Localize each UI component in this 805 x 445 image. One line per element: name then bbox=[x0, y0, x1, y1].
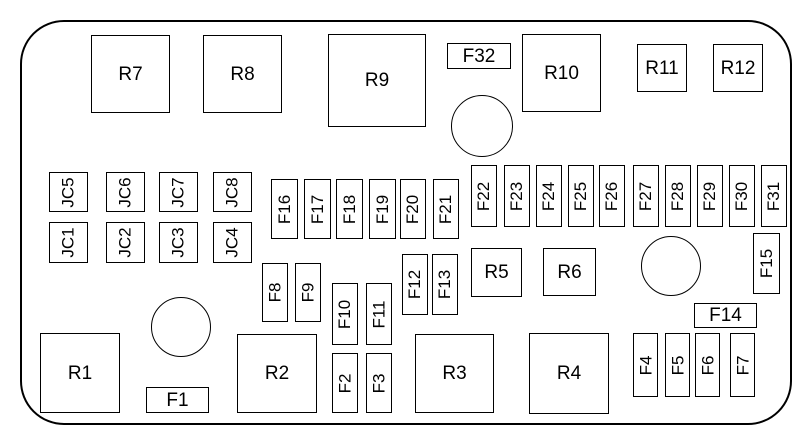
fuse-F1: F1 bbox=[146, 387, 209, 413]
fuse-F31-label: F31 bbox=[766, 181, 783, 210]
relay-R12: R12 bbox=[713, 44, 763, 92]
junction-JC5-label: JC5 bbox=[60, 177, 77, 207]
mounting-hole-right-icon bbox=[641, 236, 701, 296]
relay-R11-label: R11 bbox=[645, 59, 678, 78]
fuse-F14: F14 bbox=[694, 303, 757, 328]
fuse-F1-label: F1 bbox=[166, 391, 188, 410]
relay-R1-label: R1 bbox=[68, 364, 92, 383]
fuse-F10: F10 bbox=[332, 283, 358, 345]
fuse-F26-label: F26 bbox=[604, 181, 621, 210]
fuse-F16: F16 bbox=[271, 179, 298, 239]
junction-JC5: JC5 bbox=[49, 172, 88, 212]
junction-JC2-label: JC2 bbox=[117, 227, 134, 257]
junction-JC8-label: JC8 bbox=[224, 177, 241, 207]
relay-R2-label: R2 bbox=[265, 364, 289, 383]
fuse-F20-label: F20 bbox=[405, 194, 422, 223]
relay-R1: R1 bbox=[40, 333, 120, 413]
relay-R7-label: R7 bbox=[118, 65, 142, 84]
fuse-F28-label: F28 bbox=[670, 181, 687, 210]
relay-R6: R6 bbox=[543, 248, 596, 296]
fuse-F27: F27 bbox=[633, 165, 659, 227]
fuse-F15-label: F15 bbox=[758, 249, 775, 278]
relay-R4-label: R4 bbox=[557, 364, 581, 383]
relay-R8-label: R8 bbox=[230, 65, 254, 84]
junction-JC6: JC6 bbox=[106, 172, 145, 212]
relay-R4: R4 bbox=[529, 333, 609, 414]
junction-JC4: JC4 bbox=[213, 222, 252, 263]
relay-R5: R5 bbox=[471, 248, 522, 297]
fuse-F6-label: F6 bbox=[699, 355, 716, 375]
fuse-F22: F22 bbox=[471, 165, 497, 227]
fuse-F27-label: F27 bbox=[638, 181, 655, 210]
fuse-F21: F21 bbox=[433, 179, 459, 239]
junction-JC4-label: JC4 bbox=[224, 227, 241, 257]
fuse-F9: F9 bbox=[295, 263, 321, 322]
relay-R10: R10 bbox=[522, 34, 601, 112]
fuse-F26: F26 bbox=[599, 165, 625, 227]
fuse-F9-label: F9 bbox=[300, 283, 317, 303]
fuse-F5-label: F5 bbox=[669, 355, 686, 375]
fuse-F24-label: F24 bbox=[541, 181, 558, 210]
fuse-F3-label: F3 bbox=[371, 373, 388, 393]
fuse-F12: F12 bbox=[402, 254, 428, 315]
relay-R7: R7 bbox=[91, 35, 170, 113]
relay-R2: R2 bbox=[237, 334, 317, 413]
relay-R11: R11 bbox=[637, 44, 687, 92]
fuse-F18-label: F18 bbox=[341, 194, 358, 223]
junction-JC3-label: JC3 bbox=[170, 227, 187, 257]
fuse-F17: F17 bbox=[304, 179, 331, 239]
relay-R9: R9 bbox=[328, 34, 426, 127]
relay-R8: R8 bbox=[203, 35, 282, 113]
fuse-F25-label: F25 bbox=[573, 181, 590, 210]
fuse-F8: F8 bbox=[262, 263, 288, 322]
fuse-F29-label: F29 bbox=[702, 181, 719, 210]
fuse-F32: F32 bbox=[447, 43, 511, 69]
fuse-F7: F7 bbox=[730, 333, 755, 397]
fuse-F29: F29 bbox=[697, 165, 723, 227]
fuse-F31: F31 bbox=[761, 165, 787, 227]
relay-R3: R3 bbox=[415, 334, 494, 413]
mounting-hole-bottom-icon bbox=[151, 297, 211, 357]
fuse-F13-label: F13 bbox=[437, 270, 454, 299]
relay-R6-label: R6 bbox=[557, 263, 581, 282]
fuse-box-diagram: R7 R8 R9 F32 R10 R11 R12 JC5 JC6 JC7 JC8… bbox=[0, 0, 805, 445]
fuse-F2-label: F2 bbox=[337, 373, 354, 393]
fuse-F28: F28 bbox=[665, 165, 691, 227]
fuse-F22-label: F22 bbox=[476, 181, 493, 210]
fuse-F13: F13 bbox=[432, 254, 458, 315]
junction-JC1-label: JC1 bbox=[60, 227, 77, 257]
fuse-F4-label: F4 bbox=[637, 355, 654, 375]
fuse-F23-label: F23 bbox=[509, 181, 526, 210]
junction-JC3: JC3 bbox=[159, 222, 198, 263]
fuse-F11-label: F11 bbox=[371, 300, 388, 328]
fuse-F10-label: F10 bbox=[337, 299, 354, 328]
fuse-F24: F24 bbox=[536, 165, 562, 227]
fuse-F2: F2 bbox=[332, 353, 358, 413]
fuse-F15: F15 bbox=[753, 233, 780, 294]
fuse-F11: F11 bbox=[366, 283, 392, 345]
fuse-F8-label: F8 bbox=[267, 283, 284, 303]
fuse-F3: F3 bbox=[366, 353, 392, 413]
junction-JC8: JC8 bbox=[213, 172, 252, 212]
fuse-F21-label: F21 bbox=[438, 194, 455, 223]
junction-JC7: JC7 bbox=[159, 172, 198, 212]
fuse-F19-label: F19 bbox=[374, 194, 391, 223]
fuse-F25: F25 bbox=[568, 165, 594, 227]
fuse-F4: F4 bbox=[633, 333, 658, 397]
fuse-F5: F5 bbox=[665, 333, 690, 397]
junction-JC7-label: JC7 bbox=[170, 177, 187, 207]
fuse-F14-label: F14 bbox=[709, 306, 742, 325]
fuse-F19: F19 bbox=[369, 179, 396, 239]
relay-R9-label: R9 bbox=[365, 71, 389, 90]
fuse-F23: F23 bbox=[504, 165, 530, 227]
mounting-hole-top-icon bbox=[451, 95, 513, 157]
fuse-F17-label: F17 bbox=[309, 194, 326, 223]
fuse-F30-label: F30 bbox=[734, 181, 751, 210]
fuse-F18: F18 bbox=[336, 179, 363, 239]
junction-JC6-label: JC6 bbox=[117, 177, 134, 207]
fuse-F32-label: F32 bbox=[463, 47, 496, 66]
fuse-F7-label: F7 bbox=[734, 355, 751, 375]
relay-R5-label: R5 bbox=[484, 263, 508, 282]
fuse-F6: F6 bbox=[695, 333, 720, 397]
fuse-F20: F20 bbox=[400, 179, 426, 239]
fuse-F12-label: F12 bbox=[407, 270, 424, 299]
relay-R12-label: R12 bbox=[721, 59, 756, 78]
relay-R10-label: R10 bbox=[544, 64, 579, 83]
fuse-F16-label: F16 bbox=[276, 194, 293, 223]
junction-JC1: JC1 bbox=[49, 222, 88, 263]
junction-JC2: JC2 bbox=[106, 222, 145, 263]
fuse-F30: F30 bbox=[729, 165, 755, 227]
relay-R3-label: R3 bbox=[442, 364, 466, 383]
